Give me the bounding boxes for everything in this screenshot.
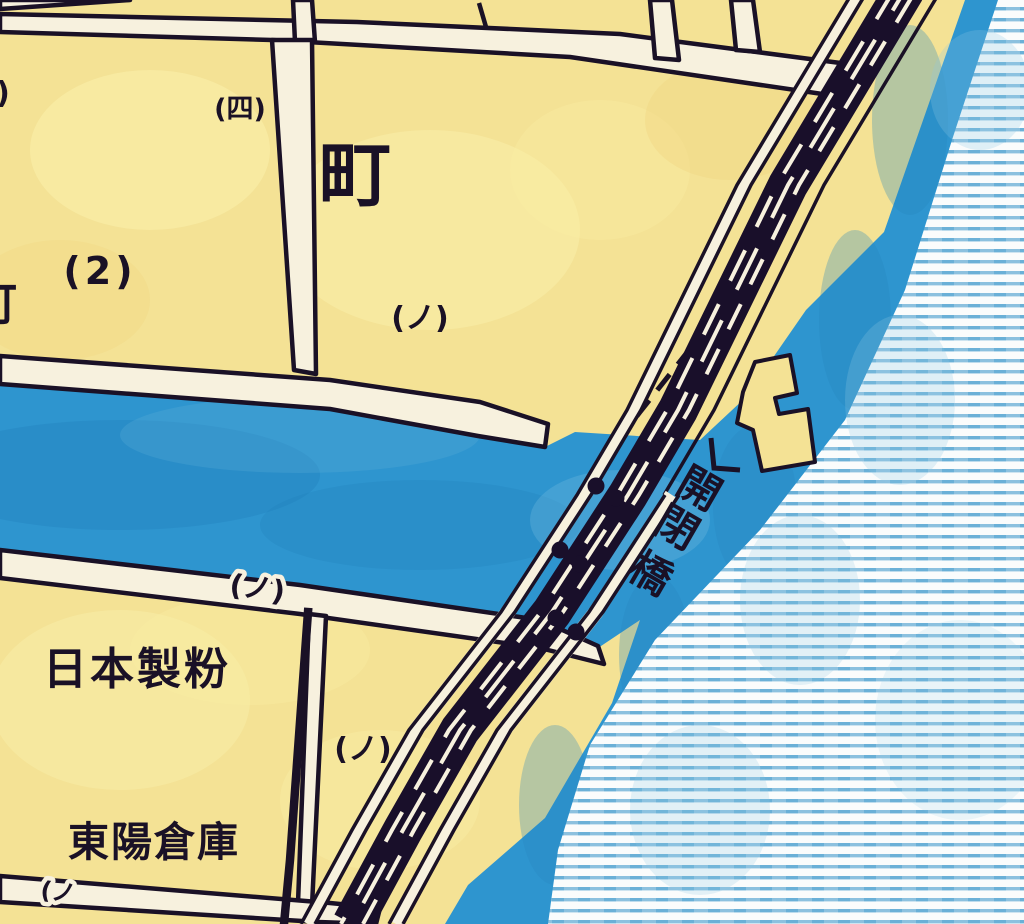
street-toprow-vertical-2 xyxy=(650,0,679,60)
label-no-upper: (ノ) xyxy=(391,301,448,336)
label-partial-paren: ) xyxy=(0,76,10,111)
label-block-2: (2) xyxy=(63,249,136,293)
label-no-bottom: (ノ xyxy=(39,876,78,909)
label-partial-cho: 町 xyxy=(0,277,17,331)
label-district-four: (四) xyxy=(214,94,266,125)
label-no-mid: (ノ) xyxy=(334,732,391,767)
label-toyo-soko: 東陽倉庫 xyxy=(68,818,240,866)
map-svg: (四) 町 (2) (ノ) (ノ) 日本製粉 (ノ) 東陽倉庫 (ノ ) 町 開… xyxy=(0,0,1024,924)
street-toprow-vertical-3 xyxy=(731,0,760,52)
label-machi: 町 xyxy=(319,133,391,217)
map-canvas: (四) 町 (2) (ノ) (ノ) 日本製粉 (ノ) 東陽倉庫 (ノ ) 町 開… xyxy=(0,0,1024,924)
label-nippon-seifun: 日本製粉 xyxy=(43,644,231,695)
street-toprow-vertical-1 xyxy=(293,0,315,42)
